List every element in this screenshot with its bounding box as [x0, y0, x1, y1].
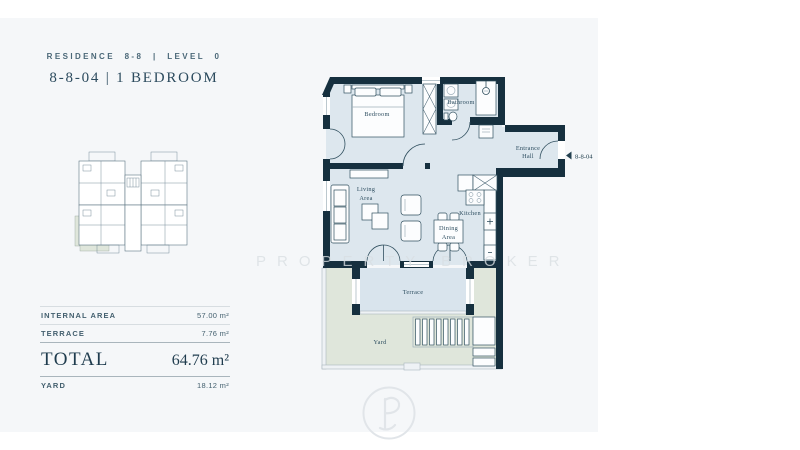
- title-block: RESIDENCE 8-8 | LEVEL 0 8-8-04 | 1 BEDRO…: [28, 52, 240, 87]
- table-row-yard: YARD 18.12 m²: [40, 377, 230, 394]
- area-table: INTERNAL AREA 57.00 m² TERRACE 7.76 m² T…: [40, 306, 230, 394]
- yard-fence-left: [322, 268, 326, 369]
- building-key-plan: [73, 150, 193, 263]
- total-label: TOTAL: [41, 349, 109, 371]
- living-area-label-line1: Living: [357, 186, 376, 193]
- unit-floor-plan: Bedroom Bathroom Entrance Hall Living Ar…: [300, 55, 595, 390]
- floorplan-brochure-page: RESIDENCE 8-8 | LEVEL 0 8-8-04 | 1 BEDRO…: [0, 0, 800, 450]
- logo-monogram-p-icon: [380, 398, 399, 429]
- dining-area-label-line2: Area: [442, 234, 455, 241]
- table-row-terrace: TERRACE 7.76 m²: [40, 325, 230, 343]
- key-plan-yard-strip: [80, 245, 109, 251]
- wardrobe: [423, 84, 436, 134]
- yard-area-label: YARD: [41, 381, 66, 390]
- brand-watermark-text: PROPERTY BROKER: [256, 253, 571, 270]
- entrance-arrow-icon: [566, 152, 572, 160]
- terrace-area-value: 7.76 m²: [201, 329, 229, 338]
- unit-tag-text: 8-8-04: [575, 154, 593, 161]
- internal-area-value: 57.00 m²: [197, 311, 229, 320]
- living-area-label-line2: Area: [359, 195, 372, 202]
- kitchen-label: Kitchen: [459, 210, 481, 217]
- key-plan-outline: [79, 152, 187, 253]
- yard-label: Yard: [374, 339, 388, 346]
- residence-level-label: RESIDENCE 8-8 | LEVEL 0: [28, 52, 240, 61]
- brand-logo-watermark: [360, 384, 418, 442]
- entrance-unit-tag: 8-8-04: [566, 152, 593, 161]
- entrance-hall-label-line1: Entrance: [516, 145, 540, 152]
- entrance-hall-label-line2: Hall: [522, 153, 534, 160]
- bedroom-label: Bedroom: [364, 111, 389, 118]
- terrace-label: Terrace: [403, 289, 424, 296]
- yard-area-value: 18.12 m²: [197, 381, 229, 390]
- total-value: 64.76 m²: [172, 352, 229, 370]
- terrace-area-label: TERRACE: [41, 329, 85, 338]
- bathroom-label: Bathroom: [447, 99, 474, 106]
- yard-gate: [404, 363, 420, 370]
- table-row-internal-area: INTERNAL AREA 57.00 m²: [40, 307, 230, 325]
- table-row-total: TOTAL 64.76 m²: [40, 343, 230, 377]
- internal-area-label: INTERNAL AREA: [41, 311, 116, 320]
- dining-area-label-line1: Dining: [439, 225, 459, 232]
- unit-title: 8-8-04 | 1 BEDROOM: [28, 70, 240, 87]
